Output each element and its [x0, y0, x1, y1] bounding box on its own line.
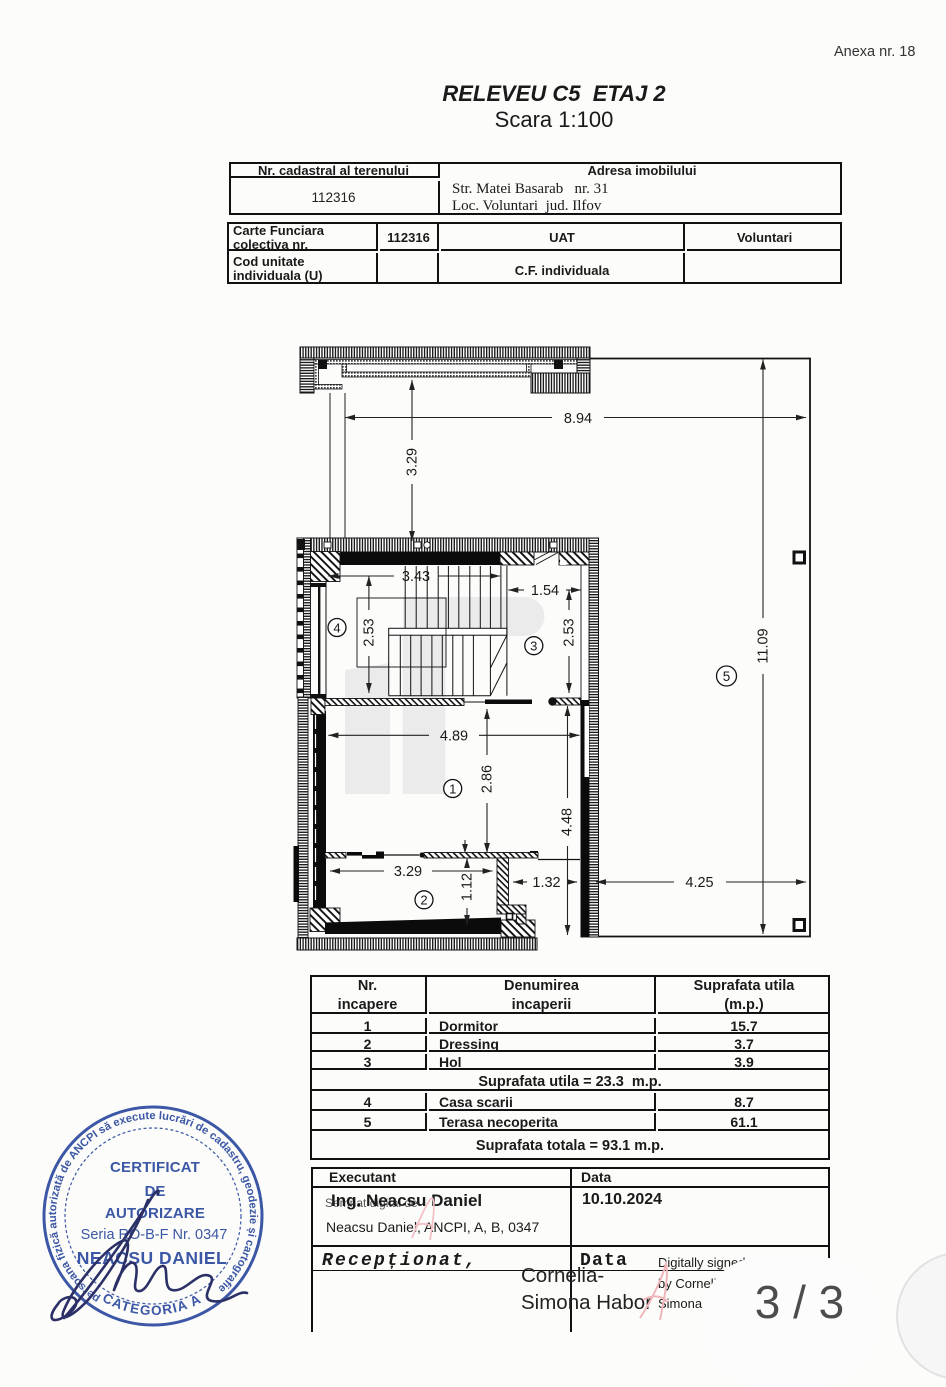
svg-text:1.12: 1.12 [460, 873, 476, 901]
svg-text:1.54: 1.54 [531, 583, 559, 599]
svg-text:11.09: 11.09 [756, 628, 772, 663]
svg-text:3.29: 3.29 [394, 864, 422, 880]
svg-text:2: 2 [420, 893, 427, 908]
svg-text:4.89: 4.89 [440, 728, 468, 744]
svg-text:4.48: 4.48 [560, 808, 576, 836]
svg-text:CERTIFICAT: CERTIFICAT [110, 1159, 200, 1176]
svg-text:3.29: 3.29 [405, 448, 421, 476]
svg-text:4: 4 [333, 620, 340, 635]
svg-text:3.43: 3.43 [402, 569, 430, 585]
svg-text:1.32: 1.32 [532, 875, 560, 891]
svg-text:2.86: 2.86 [480, 765, 496, 793]
svg-text:3: 3 [530, 639, 537, 654]
svg-text:2.53: 2.53 [562, 618, 578, 646]
svg-text:5: 5 [723, 669, 731, 684]
svg-text:2.53: 2.53 [361, 618, 377, 646]
svg-text:4.25: 4.25 [685, 875, 713, 891]
svg-text:8.94: 8.94 [564, 411, 592, 427]
svg-text:1: 1 [449, 781, 456, 796]
